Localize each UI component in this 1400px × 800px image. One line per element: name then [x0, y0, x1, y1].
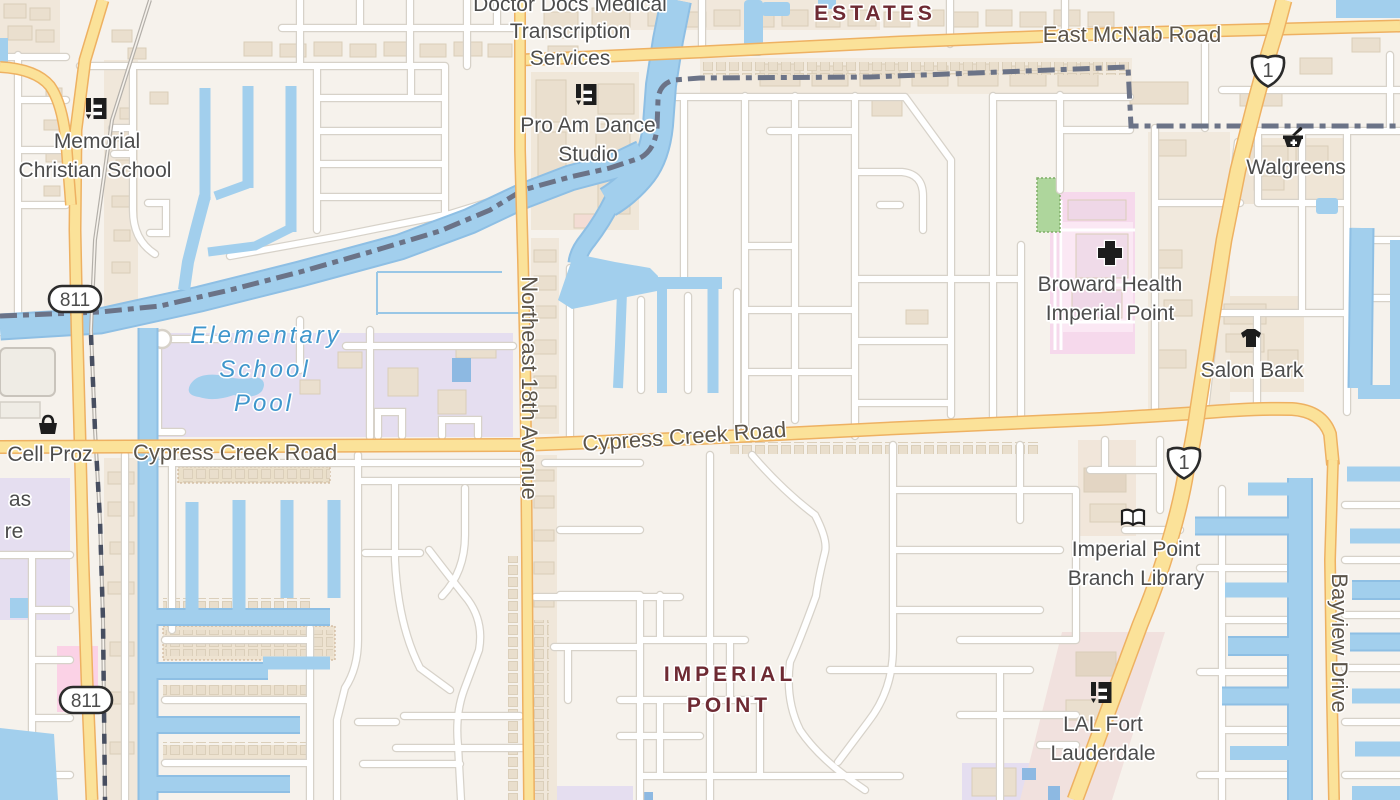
svg-text:Memorial: Memorial — [54, 130, 140, 153]
svg-text:Services: Services — [530, 47, 611, 70]
svg-text:Lauderdale: Lauderdale — [1050, 742, 1155, 765]
svg-text:School: School — [219, 356, 310, 383]
svg-text:Imperial Point: Imperial Point — [1046, 302, 1175, 325]
svg-text:Elementary: Elementary — [190, 322, 341, 349]
svg-text:Transcription: Transcription — [510, 20, 631, 43]
svg-text:as: as — [9, 488, 31, 511]
svg-text:Pro Am Dance: Pro Am Dance — [520, 114, 655, 137]
svg-text:East McNab Road: East McNab Road — [1043, 22, 1222, 47]
svg-text:Walgreens: Walgreens — [1246, 156, 1346, 179]
svg-text:Cypress Creek Road: Cypress Creek Road — [133, 440, 337, 465]
svg-text:Doctor Docs Medical: Doctor Docs Medical — [473, 0, 667, 16]
svg-text:1: 1 — [1178, 452, 1189, 474]
svg-text:Christian School: Christian School — [19, 159, 172, 182]
svg-text:IMPERIAL: IMPERIAL — [664, 663, 796, 686]
svg-text:POINT: POINT — [687, 694, 771, 717]
svg-text:1: 1 — [1262, 60, 1273, 82]
svg-text:Studio: Studio — [558, 143, 618, 166]
svg-text:re: re — [5, 520, 24, 543]
svg-text:Pool: Pool — [234, 390, 294, 417]
svg-text:Bayview Drive: Bayview Drive — [1327, 573, 1352, 712]
svg-text:Northeast 18th Avenue: Northeast 18th Avenue — [517, 276, 542, 499]
svg-text:Salon Bark: Salon Bark — [1201, 359, 1304, 382]
svg-text:LAL Fort: LAL Fort — [1063, 713, 1143, 736]
svg-text:Branch Library: Branch Library — [1068, 567, 1205, 590]
svg-text:811: 811 — [60, 290, 90, 311]
svg-text:811: 811 — [71, 691, 101, 712]
svg-text:Cell Proz: Cell Proz — [7, 443, 92, 466]
svg-text:Broward Health: Broward Health — [1038, 273, 1183, 296]
svg-text:Imperial Point: Imperial Point — [1072, 538, 1201, 561]
svg-text:ESTATES: ESTATES — [814, 2, 936, 25]
